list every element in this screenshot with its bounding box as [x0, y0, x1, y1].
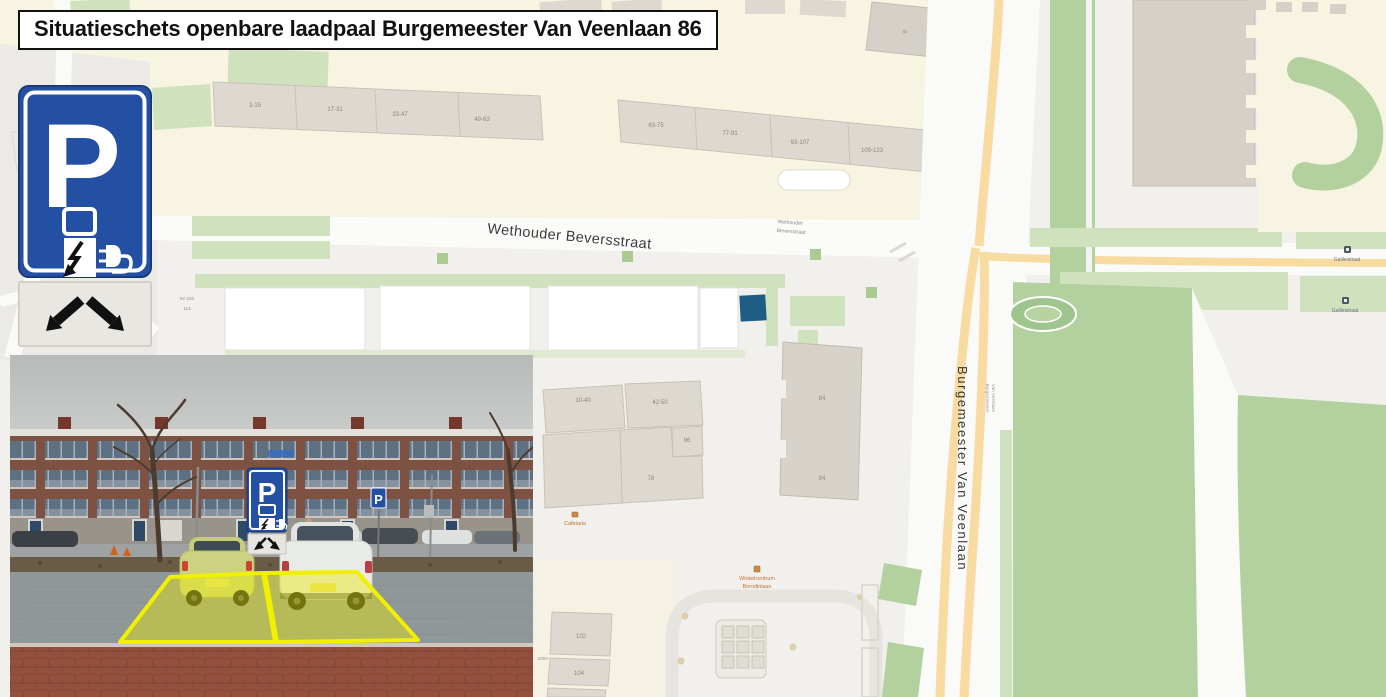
p-symbol: P [374, 492, 383, 507]
house-number: 17-31 [327, 107, 343, 113]
photo-arrows-panel [248, 534, 286, 554]
p-symbol: P [41, 99, 121, 233]
house-number: 93-107 [791, 140, 810, 146]
bus-stop-label: Galileistraat [1332, 308, 1359, 314]
house-number: 63-75 [648, 123, 664, 129]
house-number: 77-91 [722, 131, 738, 137]
parking-sign: P [18, 85, 152, 347]
house-number: 49-63 [474, 117, 490, 123]
street-label-vertical-small: Van Veenlaan [991, 384, 996, 413]
house-number: 96 [684, 438, 691, 444]
house-number: 78 [648, 476, 655, 482]
bus-stop-label: Galileistraat [1334, 257, 1361, 263]
house-number: 84 [819, 396, 826, 402]
house-number: 100A [538, 656, 550, 661]
parking-sign-board: P [19, 86, 151, 277]
poi-label: Cafetaria [564, 521, 586, 527]
house-number: 109-123 [861, 148, 884, 154]
poi-label: Winkelcentrum [739, 576, 775, 582]
house-number: 82 [902, 29, 908, 34]
double-arrow-sign [19, 282, 151, 346]
poi-icon [572, 512, 578, 517]
small-label: 114 [183, 306, 191, 311]
map-buildings-bottom: 102 104 100A [535, 560, 675, 697]
house-number: 3-15 [249, 103, 262, 109]
house-number: 10-40 [575, 398, 591, 404]
photo-red-pavement [10, 647, 533, 697]
site-photo: P [10, 355, 533, 697]
house-number: 33-47 [392, 112, 408, 118]
poi-label: Borodinlaan [743, 584, 772, 590]
street-label-vertical-small: Burgemeester [985, 384, 990, 413]
charging-location-marker [739, 294, 766, 321]
shop-icon [754, 566, 760, 572]
p-symbol: P [258, 477, 277, 508]
house-number: 42-50 [652, 400, 668, 406]
situation-sketch: 3-15 17-31 33-47 49-63 63-75 77-91 93-10… [0, 0, 1386, 697]
house-number: 104 [574, 671, 585, 677]
photo-charging-sign: P [247, 468, 287, 554]
street-label-vertical: Burgemeester Van Veenlaan [955, 366, 970, 571]
page-title: Situatieschets openbare laadpaal Burgeme… [34, 16, 702, 41]
title-box: Situatieschets openbare laadpaal Burgeme… [18, 10, 718, 50]
small-label: 52-102 [180, 296, 195, 301]
house-number: 94 [819, 476, 826, 482]
house-number: 102 [576, 634, 587, 640]
